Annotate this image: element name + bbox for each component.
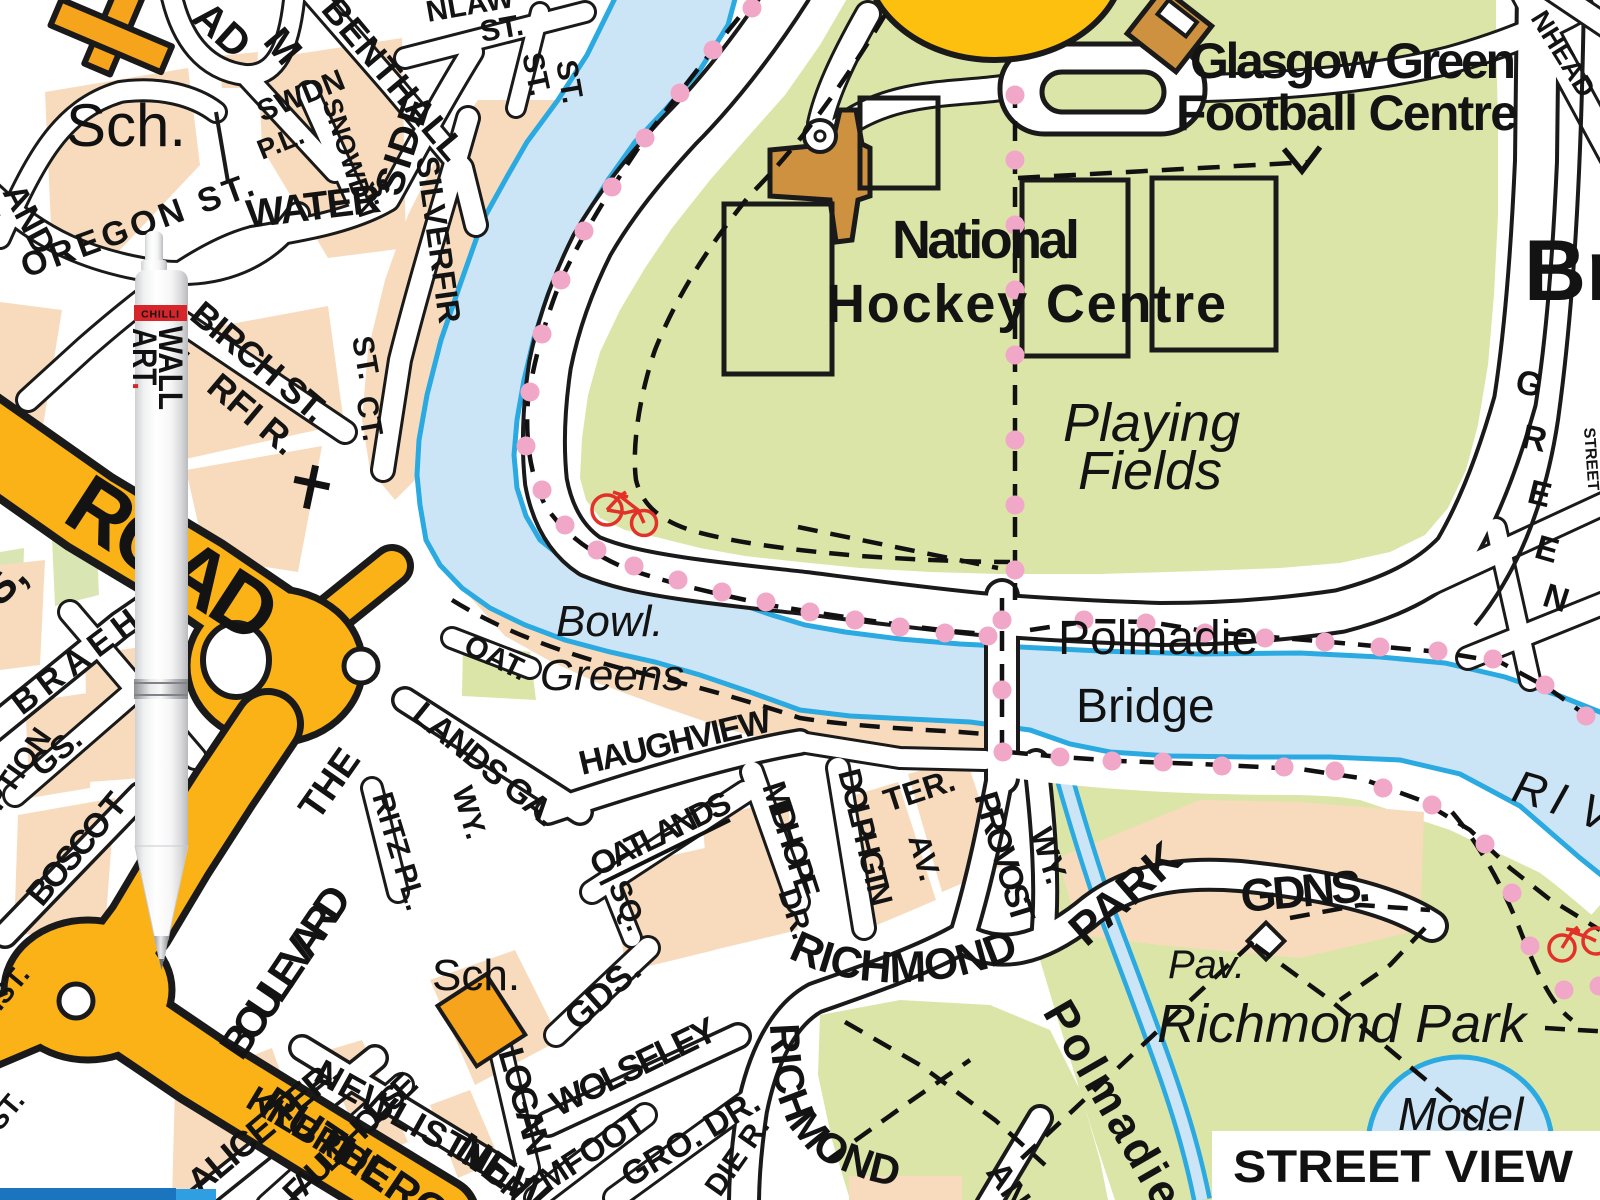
svg-text:Richmond Park: Richmond Park	[1157, 994, 1529, 1054]
svg-text:Bowl.: Bowl.	[556, 597, 664, 646]
svg-text:National: National	[892, 210, 1080, 270]
svg-text:Football Centre: Football Centre	[1176, 85, 1518, 141]
svg-text:Glasgow Green: Glasgow Green	[1190, 33, 1516, 89]
svg-text:Greens: Greens	[540, 651, 684, 700]
svg-text:Fields: Fields	[1078, 441, 1222, 501]
svg-text:ART.: ART.	[125, 328, 163, 390]
svg-text:Br: Br	[1524, 223, 1600, 319]
svg-text:Sch.: Sch.	[66, 92, 186, 159]
svg-text:Polmadie: Polmadie	[1058, 612, 1258, 665]
svg-text:CHILLI: CHILLI	[141, 309, 180, 321]
svg-text:STREET VIEW: STREET VIEW	[1233, 1141, 1574, 1192]
svg-text:Hockey Centre: Hockey Centre	[826, 274, 1226, 334]
svg-text:Sch.: Sch.	[432, 951, 520, 1000]
svg-text:Pav.: Pav.	[1168, 943, 1245, 987]
svg-text:Bridge: Bridge	[1076, 680, 1215, 733]
